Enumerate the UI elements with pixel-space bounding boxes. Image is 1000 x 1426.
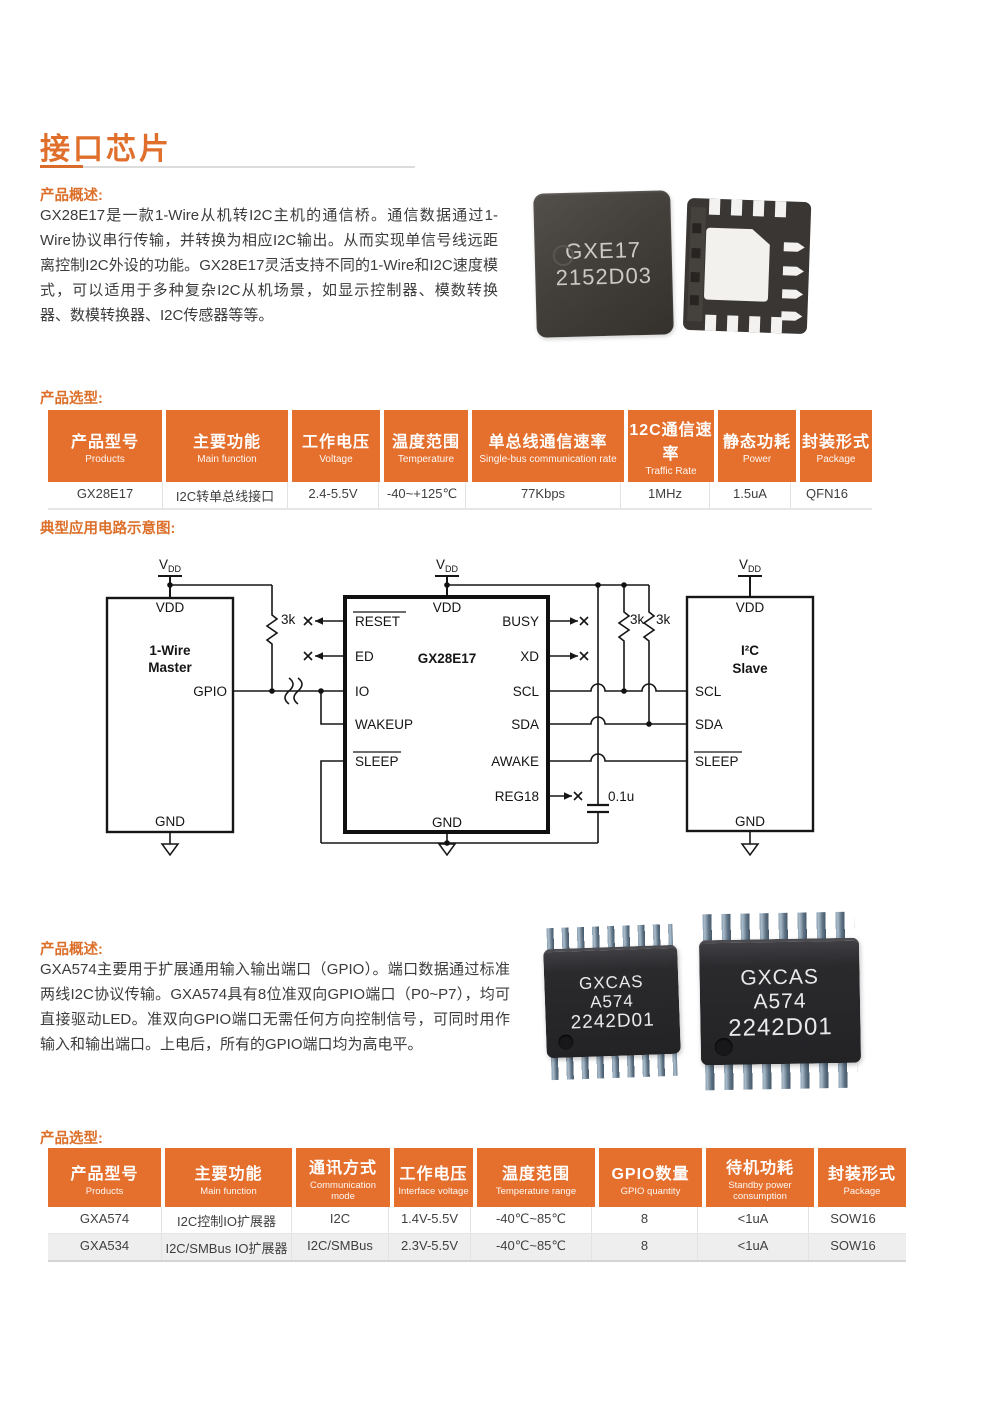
chip-marking-line1: GXE17 xyxy=(565,237,642,265)
table-cell: GXA534 xyxy=(48,1234,161,1260)
table-cell: I2C/SMBus IO扩展器 xyxy=(161,1234,291,1260)
pin-label: XD xyxy=(520,649,539,664)
nc-x-mark xyxy=(304,617,312,625)
product-table-2: 产品型号Products 主要功能Main function 通讯方式Commu… xyxy=(48,1148,906,1262)
table-cell: SOW16 xyxy=(808,1234,897,1260)
overview-text-2: GXA574主要用于扩展通用输入输出端口（GPIO）。端口数据通过标准两线I2C… xyxy=(40,957,510,1057)
selection-label-1: 产品选型: xyxy=(40,387,103,408)
table-cell: 1.5uA xyxy=(709,482,790,508)
chip-marking-line2: A574 xyxy=(590,991,634,1012)
resistor-value: 3k xyxy=(656,612,671,627)
pin-label: VDD xyxy=(433,600,462,615)
table-header-row: 产品型号Products 主要功能Main function 工作电压Volta… xyxy=(48,410,872,482)
block-title: Slave xyxy=(732,661,768,676)
pin-label: SLEEP xyxy=(355,754,399,769)
header-cell: 产品型号Products xyxy=(48,1148,161,1207)
nc-x-mark xyxy=(580,652,588,660)
table-cell: 8 xyxy=(591,1207,697,1233)
header-cell: 主要功能Main function xyxy=(165,1148,292,1207)
nc-x-mark xyxy=(574,792,582,800)
pin-label: WAKEUP xyxy=(355,717,413,732)
chip-marking-line1: GXCAS xyxy=(740,965,819,990)
table-cell: 8 xyxy=(591,1234,697,1260)
chip-photo-qfn-bottom xyxy=(681,195,814,342)
table-cell: 1.4V-5.5V xyxy=(388,1207,470,1233)
wakeup-branch xyxy=(321,691,345,724)
pin-label: SDA xyxy=(695,717,723,732)
header-cell: 主要功能Main function xyxy=(166,410,288,482)
chip-marking-line3: 2242D01 xyxy=(570,1010,655,1035)
nc-x-mark xyxy=(580,617,588,625)
table-cell: I2C xyxy=(291,1207,388,1233)
pin-label: SCL xyxy=(695,684,722,699)
table-cell: GX28E17 xyxy=(48,482,162,508)
ground-symbol xyxy=(162,844,178,855)
header-cell: 工作电压Interface voltage xyxy=(394,1148,473,1207)
page-title: 接口芯片 xyxy=(40,124,172,168)
resistor-value: 3k xyxy=(281,612,296,627)
header-cell: 静态功耗Power xyxy=(718,410,796,482)
pullup-resistor-scl xyxy=(619,585,629,691)
capacitor-symbol xyxy=(587,805,609,812)
pullup-resistor-1wire xyxy=(267,585,277,691)
pin-label: REG18 xyxy=(495,789,539,804)
vdd-symbol-label: VDD xyxy=(436,557,459,574)
pin-label: VDD xyxy=(736,600,765,615)
overview-label-2: 产品概述: xyxy=(40,938,103,959)
table-cell: I2C转单总线接口 xyxy=(162,482,287,508)
vdd-symbol-label: VDD xyxy=(159,557,182,574)
sleep-gnd-branch xyxy=(321,761,345,843)
title-underline-accent xyxy=(40,165,83,168)
overview-text-1: GX28E17是一款1-Wire从机转I2C主机的通信桥。通信数据通过1-Wir… xyxy=(40,203,498,328)
pin-label: SLEEP xyxy=(695,754,739,769)
overview-label-1: 产品概述: xyxy=(40,184,103,205)
header-cell: 封装形式Package xyxy=(818,1148,906,1207)
pin-label: SDA xyxy=(511,717,539,732)
chip-marking-line2: A574 xyxy=(753,989,806,1014)
pin-label: GND xyxy=(155,814,185,829)
table-cell: SOW16 xyxy=(808,1207,897,1233)
table-cell: -40℃~85℃ xyxy=(470,1234,591,1260)
chip-photo-qfn-top: GXE17 2152D03 xyxy=(533,190,674,338)
chip-body: GXCAS A574 2242D01 xyxy=(543,945,681,1059)
awake-sleep-line xyxy=(548,754,687,761)
sda-line xyxy=(548,717,687,724)
header-cell: 温度范围Temperature xyxy=(384,410,468,482)
header-cell: 待机功耗Standby power consumption xyxy=(706,1148,814,1207)
chip-photo-sow-small: GXCAS A574 2242D01 xyxy=(542,924,681,1081)
scl-line xyxy=(548,684,687,691)
capacitor-value: 0.1u xyxy=(608,789,634,804)
header-cell: 产品型号Products xyxy=(48,410,162,482)
table-cell: I2C/SMBus xyxy=(291,1234,388,1260)
block-title: 1-Wire xyxy=(149,643,191,658)
header-cell: 封装形式Package xyxy=(800,410,872,482)
pin-label: GPIO xyxy=(193,684,227,699)
block-title: I²C xyxy=(741,643,759,658)
chip-photo-sow-large: GXCAS A574 2242D01 xyxy=(698,912,861,1091)
table-header-row: 产品型号Products 主要功能Main function 通讯方式Commu… xyxy=(48,1148,906,1207)
chip-marking-line2: 2152D03 xyxy=(555,263,652,292)
i2c-slave-box xyxy=(687,597,813,831)
table-row: GXA574 I2C控制IO扩展器 I2C 1.4V-5.5V -40℃~85℃… xyxy=(48,1207,906,1234)
table-cell: -40~+125℃ xyxy=(378,482,465,508)
table-row: GX28E17 I2C转单总线接口 2.4-5.5V -40~+125℃ 77K… xyxy=(48,482,872,510)
resistor-value: 3k xyxy=(630,612,645,627)
pin-label: IO xyxy=(355,684,369,699)
table-cell: -40℃~85℃ xyxy=(470,1207,591,1233)
pin-label: RESET xyxy=(355,614,400,629)
pullup-resistor-sda xyxy=(644,585,654,724)
pin-label: SCL xyxy=(513,684,540,699)
title-underline xyxy=(83,166,415,168)
vdd-symbol-label: VDD xyxy=(739,557,762,574)
ground-symbol xyxy=(742,844,758,855)
chip-pin1-mark xyxy=(558,1034,574,1050)
nc-x-mark xyxy=(304,652,312,660)
pin-label: VDD xyxy=(156,600,185,615)
chip-marking-line3: 2242D01 xyxy=(728,1013,833,1042)
header-cell: 温度范围Temperature range xyxy=(477,1148,595,1207)
table-cell: 77Kbps xyxy=(465,482,620,508)
header-cell: GPIO数量GPIO quantity xyxy=(599,1148,702,1207)
chip-marking-line1: GXCAS xyxy=(579,972,644,993)
table-cell: I2C控制IO扩展器 xyxy=(161,1207,291,1233)
pin-label: GND xyxy=(735,814,765,829)
header-cell: 工作电压Voltage xyxy=(292,410,380,482)
chip-name: GX28E17 xyxy=(418,651,477,666)
header-cell: 12C通信速率Traffic Rate xyxy=(628,410,714,482)
table-cell: 2.4-5.5V xyxy=(287,482,378,508)
block-title: Master xyxy=(148,660,192,675)
table-row: GXA534 I2C/SMBus IO扩展器 I2C/SMBus 2.3V-5.… xyxy=(48,1234,906,1262)
datasheet-page: 接口芯片 产品概述: GX28E17是一款1-Wire从机转I2C主机的通信桥。… xyxy=(0,0,1000,1426)
pin-label: AWAKE xyxy=(491,754,539,769)
header-cell: 通讯方式Communication mode xyxy=(296,1148,390,1207)
pin-label: GND xyxy=(432,815,462,830)
table-cell: <1uA xyxy=(697,1234,808,1260)
table-cell: GXA574 xyxy=(48,1207,161,1233)
chip-body: GXCAS A574 2242D01 xyxy=(699,938,861,1066)
table-cell: 2.3V-5.5V xyxy=(388,1234,470,1260)
pin-label: BUSY xyxy=(502,614,539,629)
pin-label: ED xyxy=(355,649,374,664)
chip-pin1-mark xyxy=(715,1038,733,1056)
circuit-label: 典型应用电路示意图: xyxy=(40,517,175,538)
selection-label-2: 产品选型: xyxy=(40,1127,103,1148)
onewire-master-box xyxy=(107,598,233,832)
table-cell: QFN16 xyxy=(790,482,863,508)
application-circuit-diagram: VDD VDD VDD xyxy=(90,545,830,875)
table-cell: 1MHz xyxy=(620,482,709,508)
product-table-1: 产品型号Products 主要功能Main function 工作电压Volta… xyxy=(48,410,872,510)
header-cell: 单总线通信速率Single-bus communication rate xyxy=(472,410,624,482)
table-cell: <1uA xyxy=(697,1207,808,1233)
